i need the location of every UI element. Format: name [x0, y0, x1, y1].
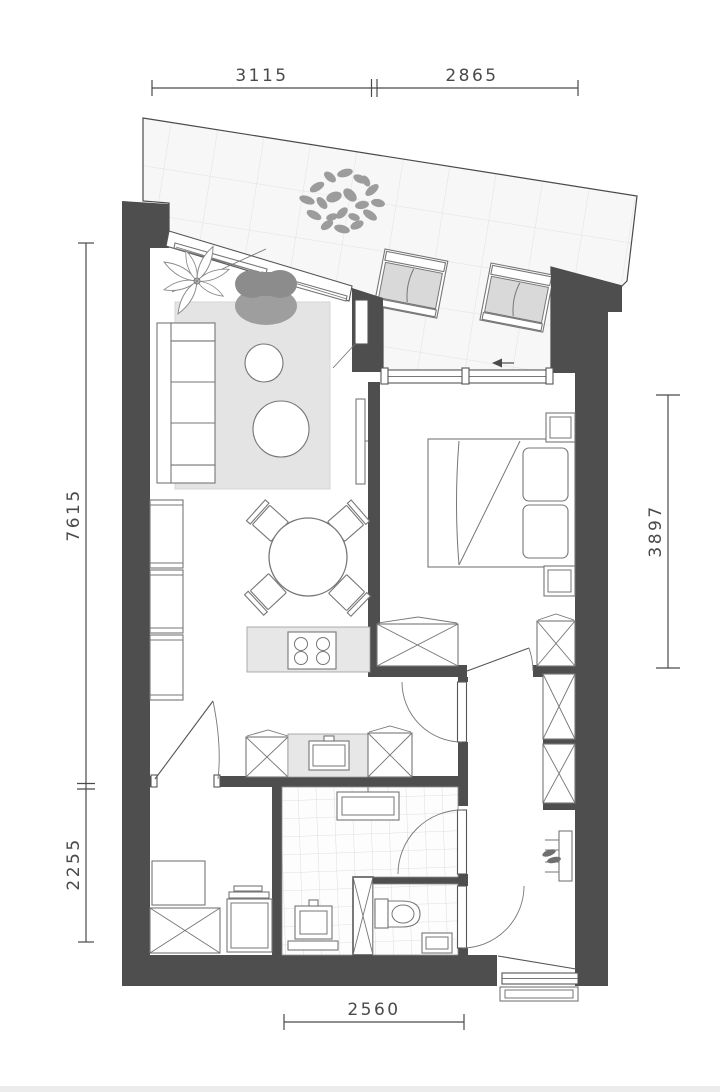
sofa: [157, 323, 215, 483]
doormat: [500, 987, 578, 1001]
toilet-door: [458, 886, 525, 948]
coffee-table-small: [245, 344, 283, 382]
pillow-bottom: [523, 505, 568, 558]
dim-label-left-upper: 7615: [64, 488, 84, 541]
dim-label-top-left: 3115: [235, 66, 288, 86]
bathroom-west-wall: [272, 787, 282, 955]
dim-label-right: 3897: [646, 504, 666, 557]
shelving-unit: [150, 500, 183, 700]
storage-cabinet: [227, 886, 272, 952]
floor-plan-page: 3115 2865 7615 2255 3897 2560: [0, 0, 720, 1092]
dim-label-bottom: 2560: [347, 1000, 400, 1020]
toilet-room: [373, 884, 524, 955]
dining-area: [245, 500, 371, 616]
hand-basin: [422, 933, 452, 953]
bedroom-south-wall-left: [368, 665, 467, 677]
pillow-top: [523, 448, 568, 501]
dim-bottom: 2560: [284, 1000, 464, 1030]
bed: [428, 439, 575, 567]
coffee-table-large: [253, 401, 309, 457]
floor-plan-drawing: 3115 2865 7615 2255 3897 2560: [0, 0, 720, 1092]
storage-door: [151, 701, 220, 787]
closet-cap2: [543, 803, 575, 810]
closet-bottom: [543, 744, 575, 803]
closet-top: [543, 674, 575, 739]
dim-right: 3897: [646, 395, 680, 668]
toilet-bowl: [375, 899, 420, 928]
footer-strip: [0, 1086, 720, 1092]
left-wall: [122, 244, 150, 986]
sun-lounger-right: [480, 263, 554, 332]
bathroom-north-wall: [217, 776, 458, 787]
wardrobe-right: [537, 614, 575, 666]
washbasin: [288, 900, 338, 950]
bedroom: [377, 413, 575, 671]
kitchen-sink: [309, 736, 349, 770]
armchair: [235, 270, 297, 325]
bedroom-door: [467, 648, 533, 671]
top-left-pier-wall: [122, 201, 169, 248]
cooktop-counter: [247, 627, 370, 672]
dim-label-left-lower: 2255: [64, 837, 84, 890]
entry: [498, 956, 578, 1001]
coat-rack: [541, 831, 572, 881]
sun-lounger-left: [374, 249, 448, 318]
bottom-wall: [122, 955, 497, 986]
nightstand-top: [546, 413, 575, 442]
shoes-icon: [541, 848, 556, 858]
entry-door: [498, 956, 578, 984]
hall-wall-seg2: [458, 742, 468, 806]
dim-left: 7615 2255: [64, 243, 95, 942]
storage-shelf: [152, 861, 205, 905]
radiator: [337, 787, 399, 820]
right-wall: [575, 312, 608, 986]
hall-wall-seg3: [458, 874, 468, 886]
dim-top: 3115 2865: [152, 66, 578, 97]
dim-label-top-right: 2865: [445, 66, 498, 86]
closet-cap1: [543, 739, 575, 744]
tv: [356, 399, 368, 484]
hall-wall-seg4: [458, 948, 468, 955]
toilet-north-wall: [373, 877, 458, 884]
washing-machine: [150, 908, 220, 953]
hall-wall-seg1: [458, 677, 468, 682]
duct-shaft: [353, 877, 373, 955]
wardrobe-left: [377, 617, 458, 666]
sink-counter-row: [246, 726, 412, 777]
nightstand-bottom: [544, 566, 575, 596]
cooktop: [288, 632, 336, 669]
dining-table: [269, 518, 347, 596]
